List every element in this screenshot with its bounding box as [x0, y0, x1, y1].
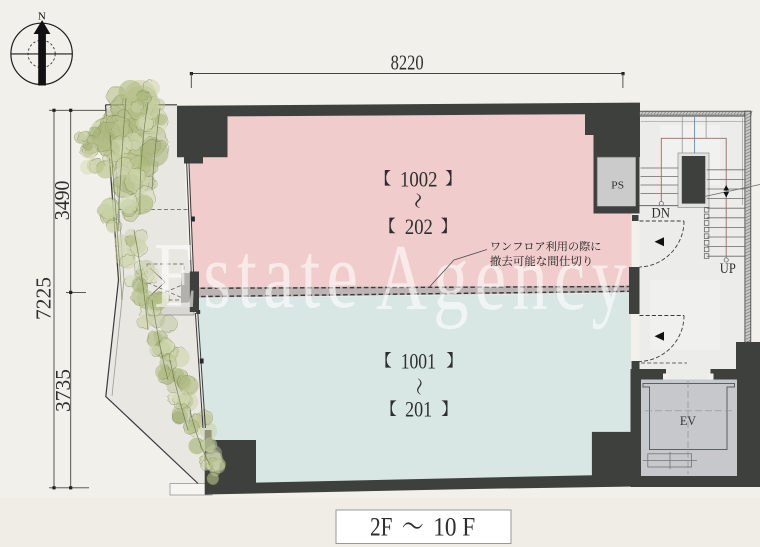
svg-text:3490: 3490: [50, 181, 74, 221]
svg-text:N: N: [38, 10, 46, 22]
svg-text:Estate: Estate: [154, 223, 364, 327]
svg-text:7225: 7225: [31, 277, 55, 320]
svg-text:8220: 8220: [391, 51, 424, 75]
svg-text:1002: 1002: [400, 166, 438, 191]
svg-text:201: 201: [405, 397, 432, 422]
svg-text:10 F: 10 F: [433, 513, 475, 542]
svg-text:DN: DN: [652, 205, 671, 221]
svg-text:UP: UP: [720, 261, 736, 277]
svg-text:Agency: Agency: [376, 225, 633, 329]
svg-text:1001: 1001: [401, 348, 436, 373]
svg-text:EV: EV: [680, 413, 697, 428]
svg-text:PS: PS: [611, 180, 624, 192]
svg-text:3735: 3735: [51, 369, 75, 412]
svg-text:202: 202: [405, 214, 433, 239]
svg-text:2F: 2F: [370, 513, 393, 542]
